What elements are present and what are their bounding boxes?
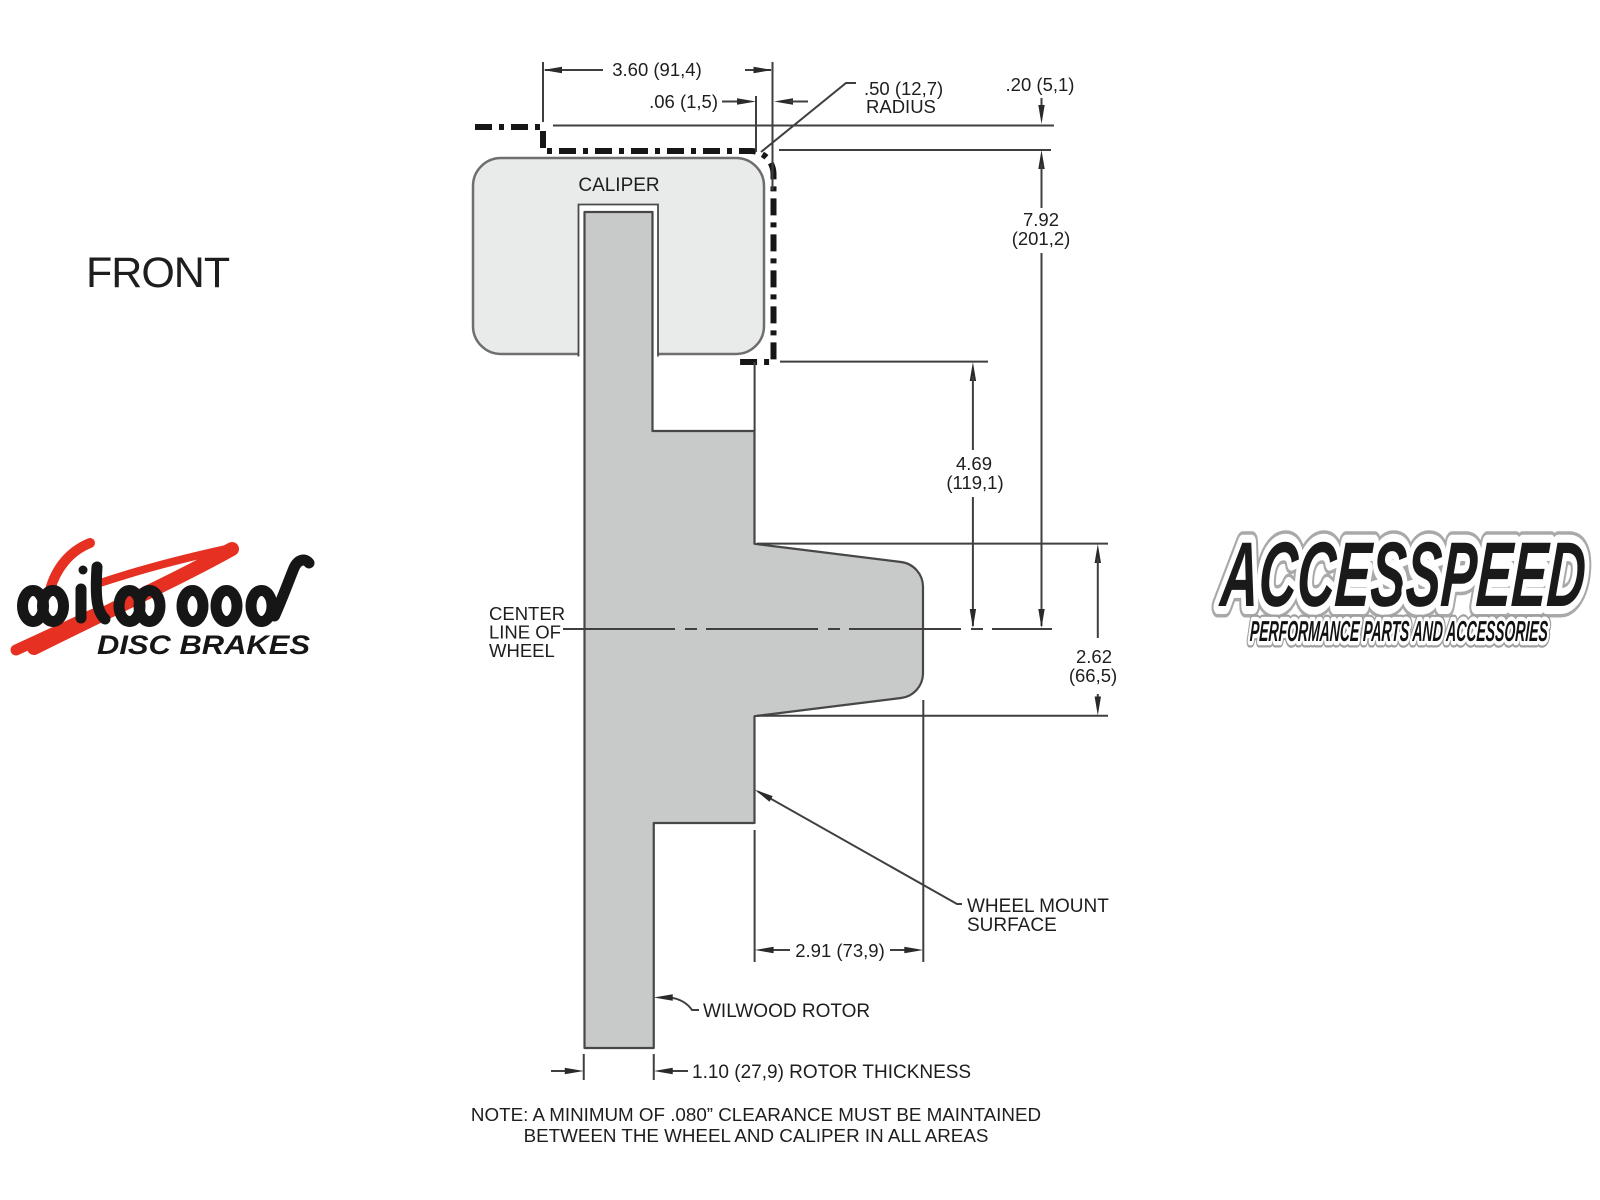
svg-text:.20 (5,1): .20 (5,1) [1006,74,1075,95]
svg-text:7.92: 7.92 [1023,209,1059,230]
svg-text:S: S [1368,523,1409,626]
svg-text:(119,1): (119,1) [946,472,1003,493]
svg-text:SURFACE: SURFACE [967,915,1057,936]
svg-text:1.10 (27,9) ROTOR THICKNESS: 1.10 (27,9) ROTOR THICKNESS [692,1062,971,1083]
svg-text:S: S [1403,523,1444,626]
svg-text:(201,2): (201,2) [1012,228,1071,249]
svg-text:D: D [1544,523,1588,626]
svg-text:A: A [1217,523,1263,626]
svg-text:2.91 (73,9): 2.91 (73,9) [795,940,884,961]
svg-text:DISC BRAKES: DISC BRAKES [97,630,310,660]
svg-text:FRONT: FRONT [86,249,230,297]
svg-text:.06 (1,5): .06 (1,5) [649,91,718,112]
svg-text:NOTE: A MINIMUM OF .080” CLEAR: NOTE: A MINIMUM OF .080” CLEARANCE MUST … [471,1104,1041,1125]
svg-text:RADIUS: RADIUS [866,96,936,117]
svg-text:WILWOOD ROTOR: WILWOOD ROTOR [703,1001,870,1022]
svg-text:4.69: 4.69 [956,453,992,474]
svg-text:CALIPER: CALIPER [578,175,659,196]
svg-text:(66,5): (66,5) [1069,665,1117,686]
svg-text:2.62: 2.62 [1076,646,1112,667]
svg-text:3.60 (91,4): 3.60 (91,4) [612,59,701,80]
svg-text:PERFORMANCE PARTS AND ACCESSOR: PERFORMANCE PARTS AND ACCESSORIES [1249,614,1549,647]
svg-text:WHEEL MOUNT: WHEEL MOUNT [967,896,1109,917]
svg-text:BETWEEN THE WHEEL AND CALIPER: BETWEEN THE WHEEL AND CALIPER IN ALL ARE… [524,1125,989,1146]
svg-text:WHEEL: WHEEL [489,640,555,661]
